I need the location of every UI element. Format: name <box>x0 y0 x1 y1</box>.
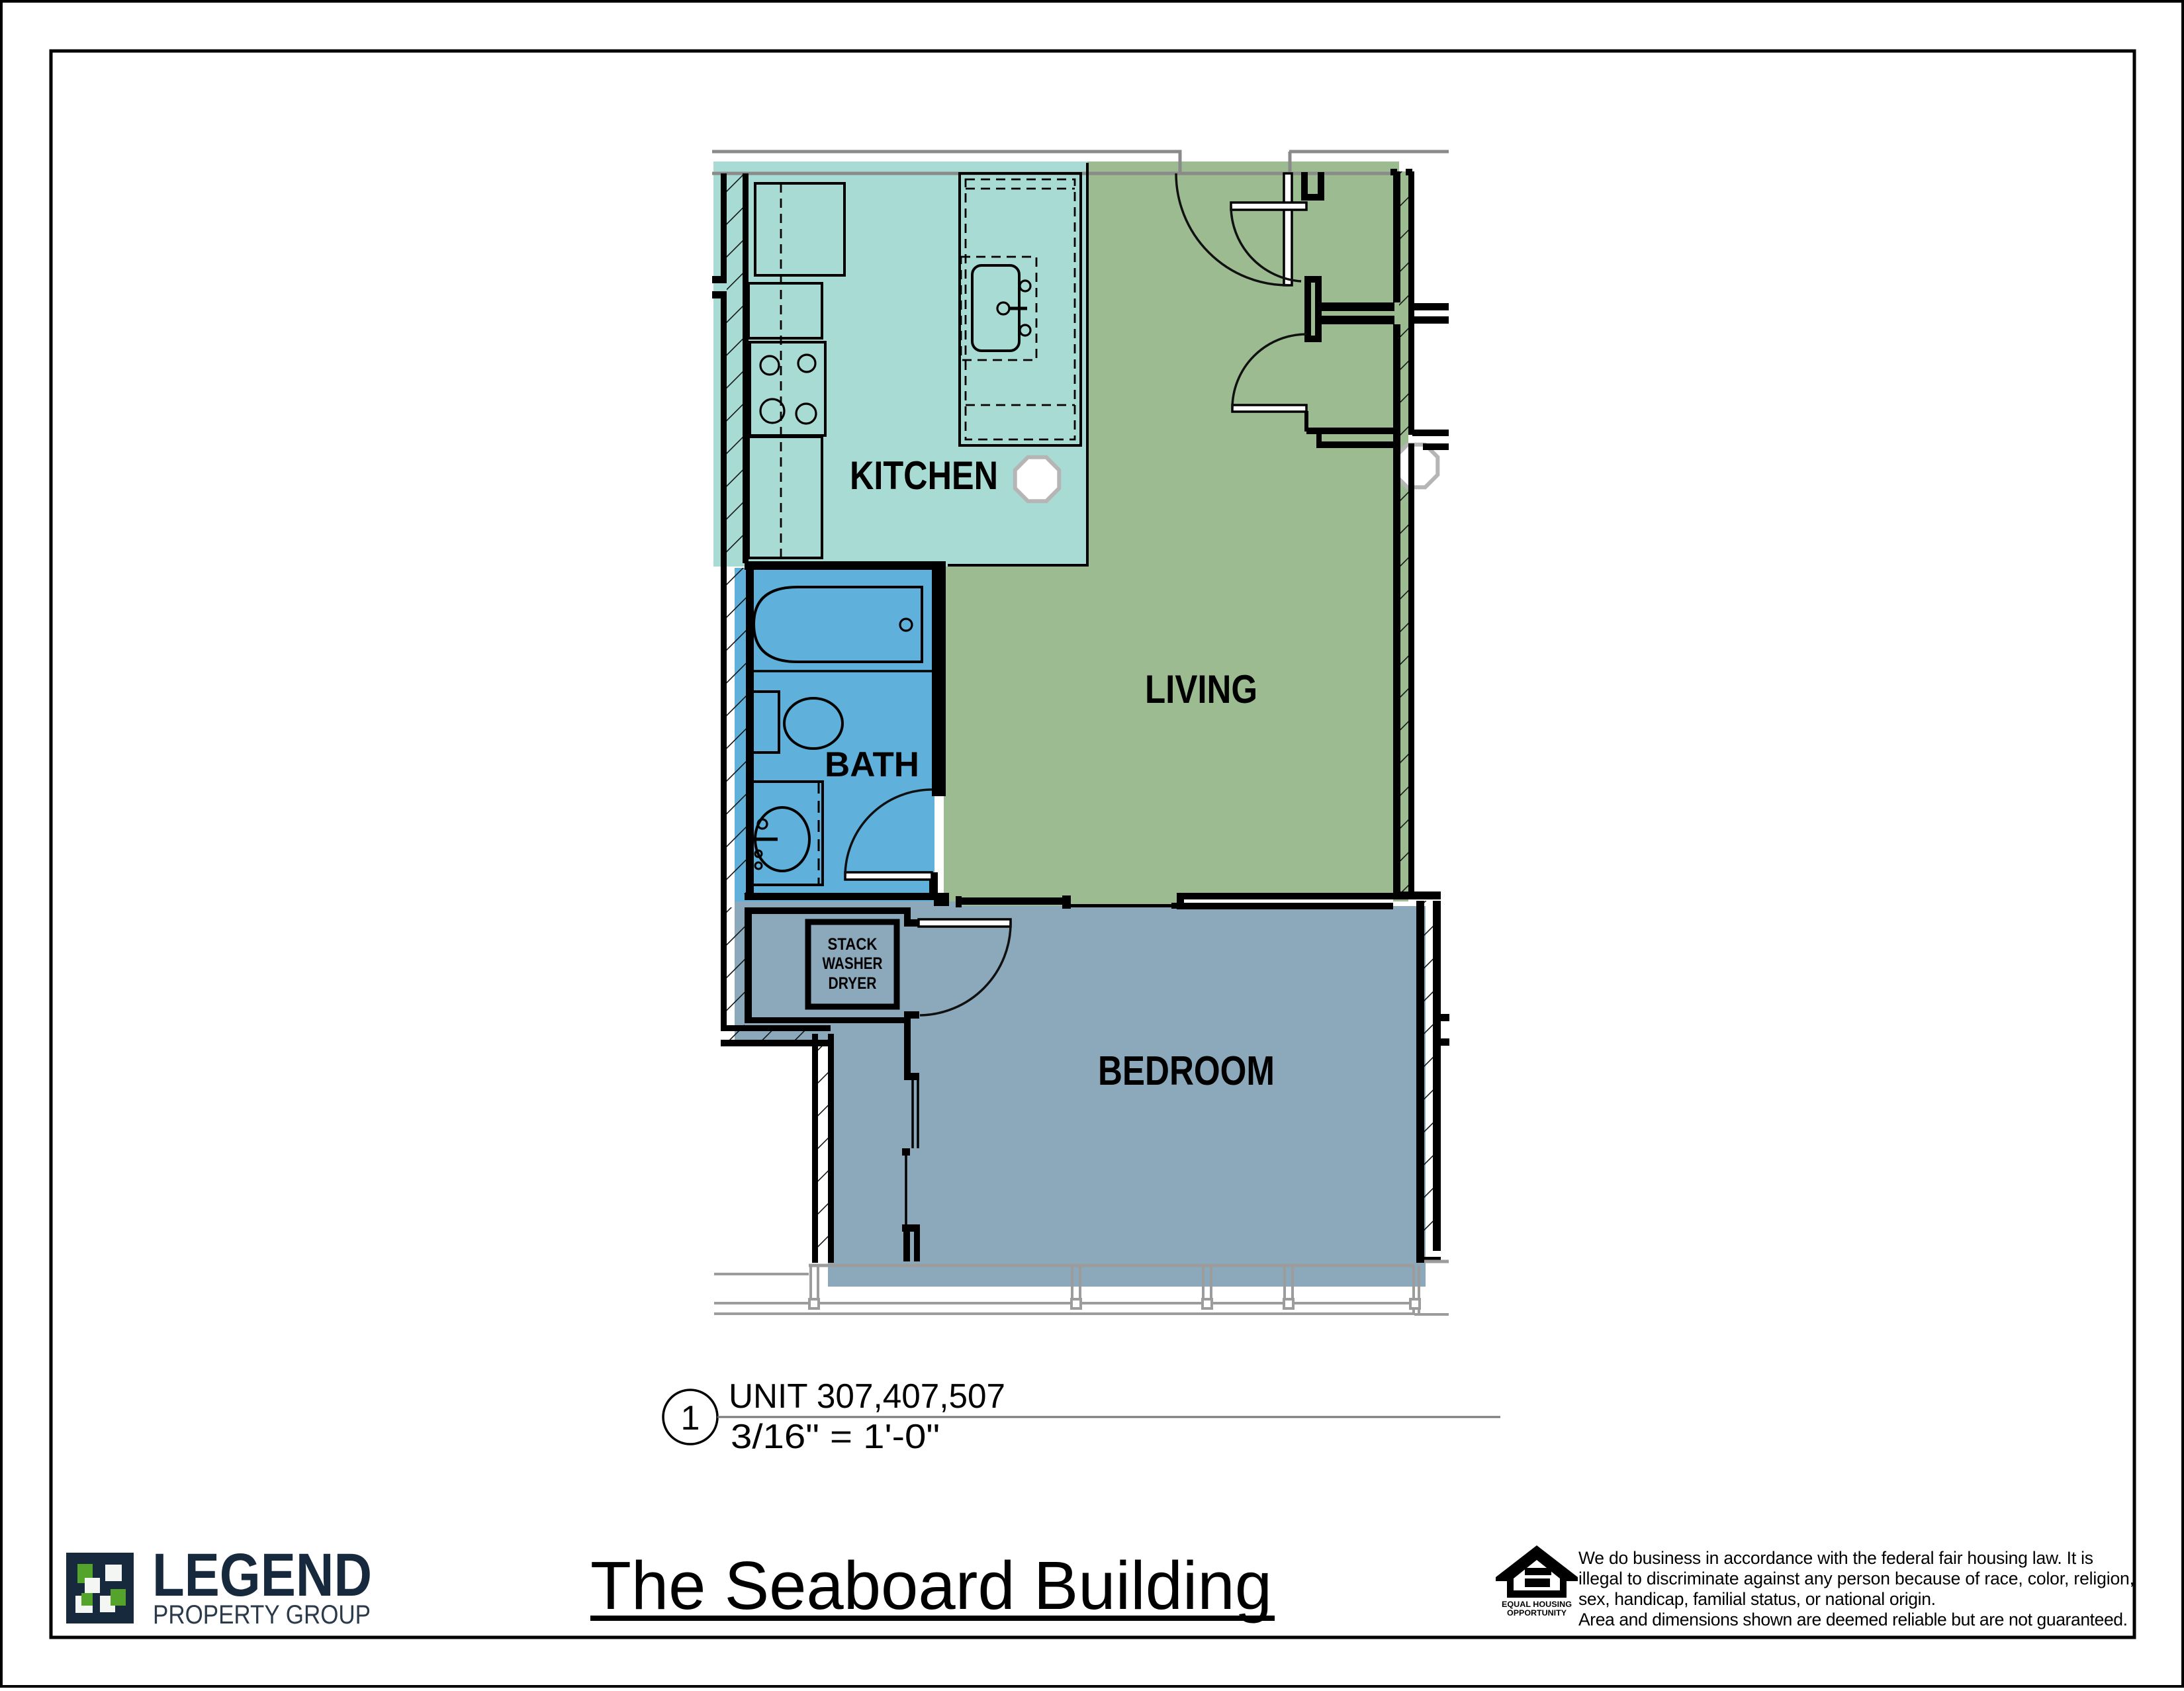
svg-text:We do business in accordance w: We do business in accordance with the fe… <box>1578 1548 2093 1568</box>
svg-text:KITCHEN: KITCHEN <box>850 453 998 498</box>
svg-text:BEDROOM: BEDROOM <box>1098 1048 1275 1094</box>
svg-text:WASHER: WASHER <box>823 954 883 973</box>
svg-text:EQUAL HOUSING: EQUAL HOUSING <box>1502 1600 1572 1609</box>
svg-text:PROPERTY GROUP: PROPERTY GROUP <box>153 1600 371 1629</box>
svg-text:LIVING: LIVING <box>1145 667 1257 711</box>
svg-text:sex, handicap, familial status: sex, handicap, familial status, or natio… <box>1578 1589 1936 1609</box>
svg-text:The Seaboard Building: The Seaboard Building <box>590 1547 1272 1623</box>
svg-text:UNIT 307,407,507: UNIT 307,407,507 <box>729 1377 1005 1416</box>
svg-text:OPPORTUNITY: OPPORTUNITY <box>1507 1608 1567 1618</box>
svg-text:LEGEND: LEGEND <box>152 1541 372 1609</box>
svg-text:3/16" = 1'-0": 3/16" = 1'-0" <box>731 1418 940 1456</box>
svg-text:BATH: BATH <box>825 745 919 784</box>
svg-text:Area and dimensions shown are: Area and dimensions shown are deemed rel… <box>1578 1610 2128 1629</box>
svg-text:1: 1 <box>681 1399 700 1438</box>
svg-text:illegal to discriminate agains: illegal to discriminate against any pers… <box>1578 1569 2134 1588</box>
svg-text:DRYER: DRYER <box>829 974 877 993</box>
svg-text:STACK: STACK <box>828 935 878 954</box>
